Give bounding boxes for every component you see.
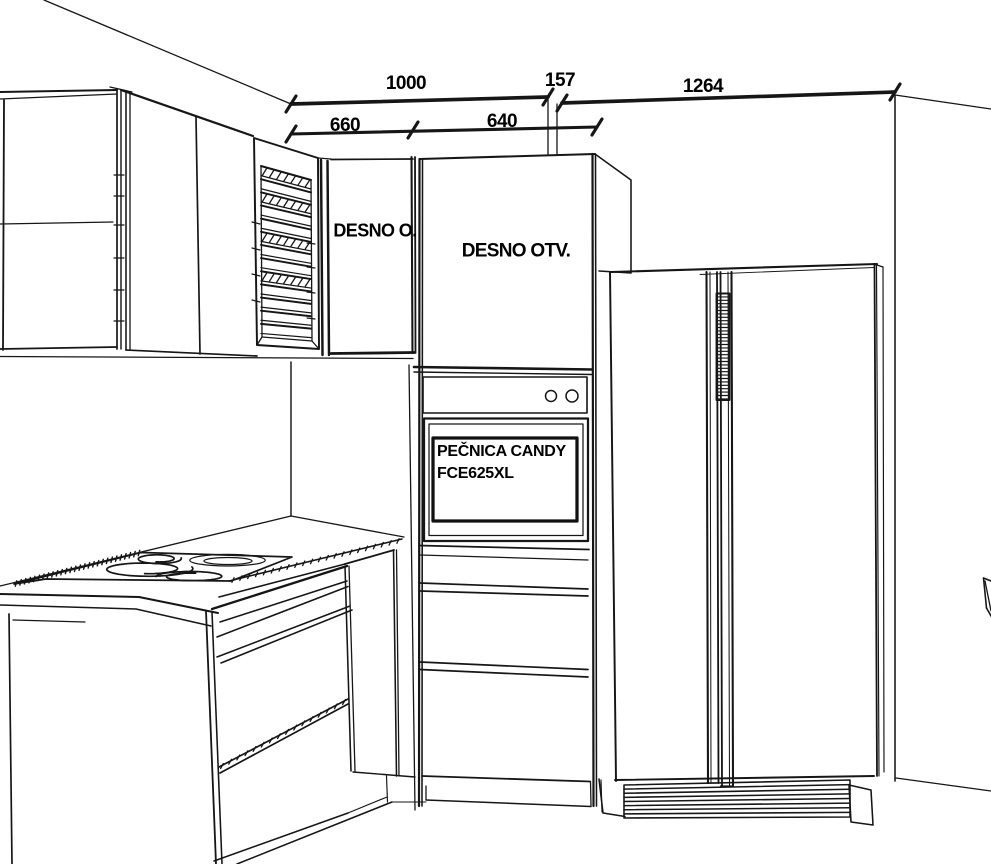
svg-text:157: 157 bbox=[545, 70, 575, 91]
svg-text:DESNO OTV.: DESNO OTV. bbox=[462, 241, 570, 262]
svg-text:1000: 1000 bbox=[386, 73, 426, 94]
svg-text:1264: 1264 bbox=[683, 76, 724, 97]
svg-text:PEČNICA CANDY: PEČNICA CANDY bbox=[437, 441, 566, 460]
svg-text:660: 660 bbox=[330, 115, 360, 136]
svg-text:FCE625XL: FCE625XL bbox=[437, 465, 514, 482]
svg-text:640: 640 bbox=[487, 111, 517, 132]
svg-text:DESNO O.: DESNO O. bbox=[333, 221, 416, 241]
